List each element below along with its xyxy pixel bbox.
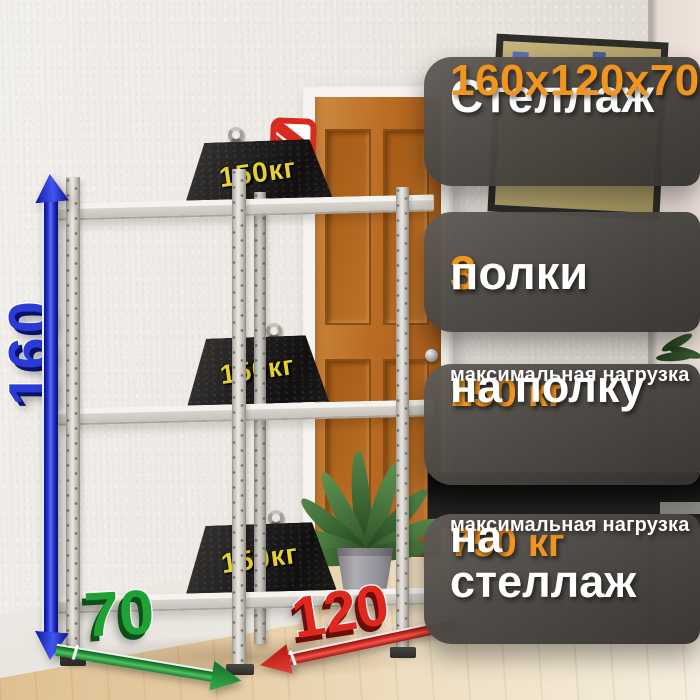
info-panel-rack-load: 750 кг максимальная нагрузка на стеллаж xyxy=(424,514,700,644)
info-panel-shelves: 3 полки xyxy=(424,212,700,332)
rack-post-left xyxy=(66,177,80,663)
product-dimensions: 160х120х70 xyxy=(450,57,700,105)
rack-load-target: на стеллаж xyxy=(450,514,700,604)
info-panel-title: Стеллаж 160х120х70 xyxy=(424,57,700,186)
rack-post-right xyxy=(396,187,409,655)
door-panel xyxy=(325,129,371,325)
depth-dimension-label: 70 xyxy=(82,576,156,652)
weight-label: 150кг xyxy=(217,151,298,193)
product-infographic: 150кг 150кг 150кг 160 70 120 Стеллаж 160… xyxy=(0,0,700,700)
height-arrow xyxy=(34,176,68,658)
lifting-eye-icon xyxy=(228,127,244,143)
door-knob xyxy=(425,349,438,362)
shelves-word: полки xyxy=(450,245,588,300)
background-plant-sprig xyxy=(656,330,700,366)
shelf-load-target: на полку xyxy=(450,364,644,409)
info-panel-shelf-load: 150 кг максимальная нагрузка на полку xyxy=(424,364,700,485)
rack-post-middle xyxy=(232,169,246,673)
